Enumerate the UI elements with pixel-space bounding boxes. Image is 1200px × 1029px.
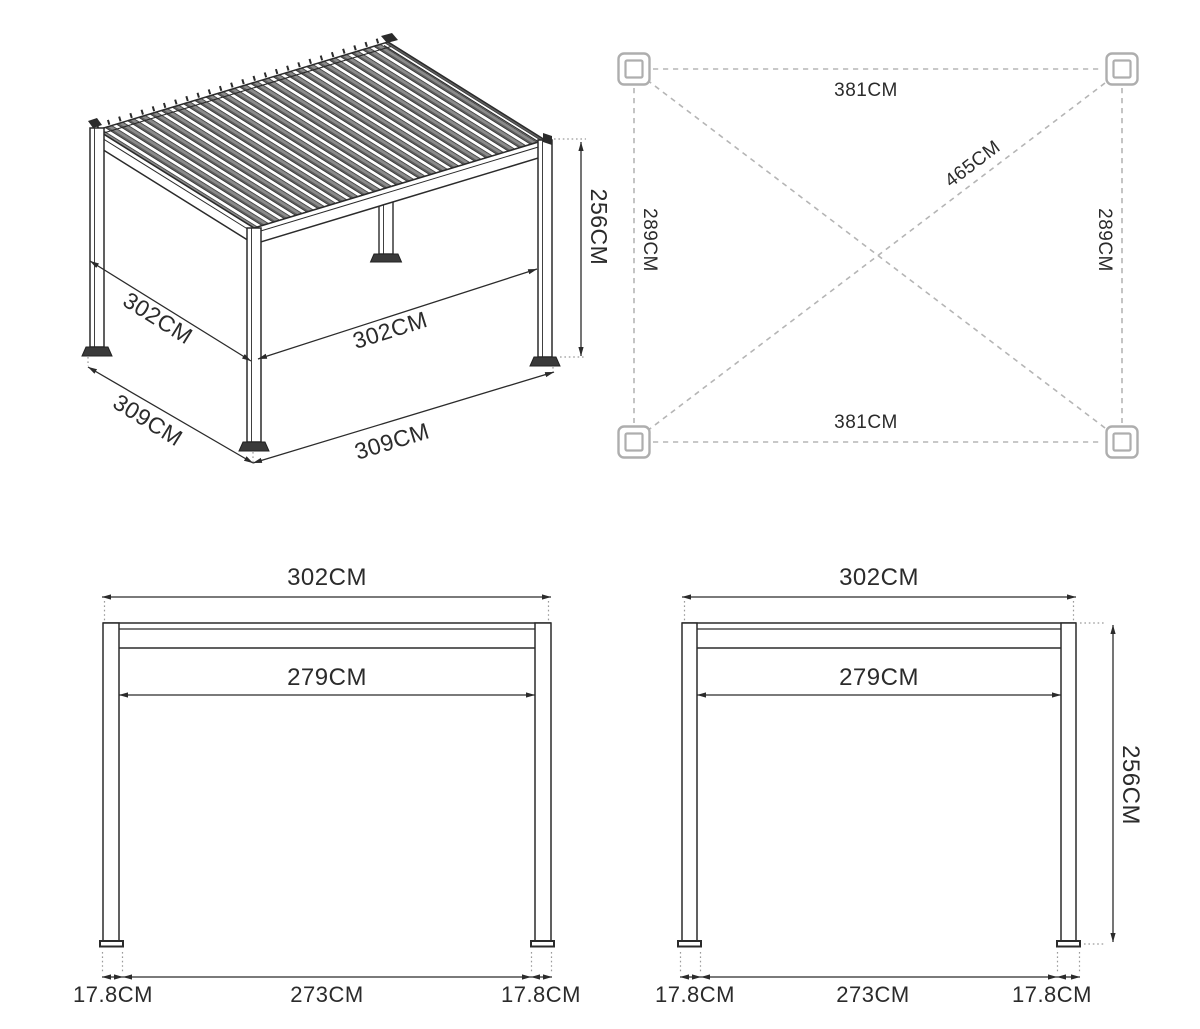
post-foot [1057,941,1080,947]
dim-label-foot-right: 17.8CM [501,982,581,1007]
isometric-view: 302CM 302CM 256CM 309CM 309CM [82,33,612,465]
dim-label-base-front: 309CM [352,417,433,464]
corner-marker-top-right [1107,54,1138,85]
dim-label-span: 273CM [836,982,909,1007]
dim-label-foot-left: 17.8CM [73,982,153,1007]
post-foot [678,941,701,947]
dim-label-plan-left: 289CM [639,208,660,272]
dim-label-height: 256CM [586,189,612,266]
dim-label-plan-top: 381CM [834,80,898,101]
post-foot [82,347,112,356]
diagram-canvas: 302CM 302CM 256CM 309CM 309CM [0,0,1200,1029]
post-right [535,623,551,941]
post-left [682,623,697,941]
post-right [1061,623,1076,941]
dim-label-width: 302CM [287,564,367,591]
dim-label-plan-bottom: 381CM [834,412,898,433]
dim-label-foot-right: 17.8CM [1012,982,1092,1007]
dim-label-foot-left: 17.8CM [655,982,735,1007]
front-elevation: 302CM 279CM 17.8CM 273CM 17.8CM [73,564,581,1007]
dim-label-plan-right: 289CM [1094,208,1115,272]
dim-label-width: 302CM [839,564,919,591]
roof-louvers [97,42,545,228]
post-foot [530,357,560,366]
dim-label-base-side: 309CM [109,389,188,452]
dim-label-side: 302CM [119,287,198,350]
plan-view: 381CM 381CM 289CM 289CM 465CM [619,54,1138,458]
pergola-dimension-diagram: 302CM 302CM 256CM 309CM 309CM [0,0,1200,1029]
side-elevation: 302CM 279CM 256CM 17.8CM 273CM 17.8CM [655,564,1144,1007]
roof-corner-cap-back [381,33,398,43]
corner-post-front [239,228,269,451]
corner-post-right [530,133,560,366]
post-foot [371,254,402,262]
dim-label-inner: 279CM [839,664,919,691]
dim-label-inner: 279CM [287,664,367,691]
dim-label-height: 256CM [1117,745,1144,825]
post-foot [100,941,123,947]
post-left [103,623,119,941]
dim-label-front: 302CM [350,306,431,354]
post-foot [239,442,269,451]
corner-marker-bottom-right [1107,427,1138,458]
corner-marker-top-left [619,54,650,85]
post-cap [88,118,102,128]
dim-label-plan-diagonal: 465CM [941,137,1004,192]
rear-post [371,200,402,262]
corner-marker-bottom-left [619,427,650,458]
dim-label-span: 273CM [290,982,363,1007]
post-foot [531,941,554,947]
corner-post-left [82,118,112,356]
